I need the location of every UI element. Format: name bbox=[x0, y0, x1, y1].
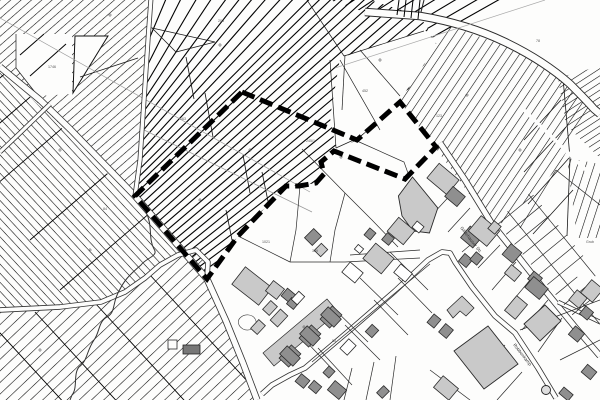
svg-text:55: 55 bbox=[332, 339, 336, 343]
svg-text:1746: 1746 bbox=[48, 65, 56, 69]
svg-text:245/1: 245/1 bbox=[306, 139, 315, 143]
svg-text:84: 84 bbox=[103, 207, 107, 211]
svg-text:163: 163 bbox=[180, 117, 186, 121]
svg-text:208: 208 bbox=[218, 19, 224, 23]
svg-text:1021: 1021 bbox=[262, 240, 270, 244]
svg-text:Grub: Grub bbox=[586, 240, 594, 244]
svg-text:309: 309 bbox=[312, 249, 318, 253]
svg-text:123: 123 bbox=[436, 114, 442, 118]
svg-text:452: 452 bbox=[362, 89, 368, 93]
svg-text:78: 78 bbox=[536, 39, 540, 43]
